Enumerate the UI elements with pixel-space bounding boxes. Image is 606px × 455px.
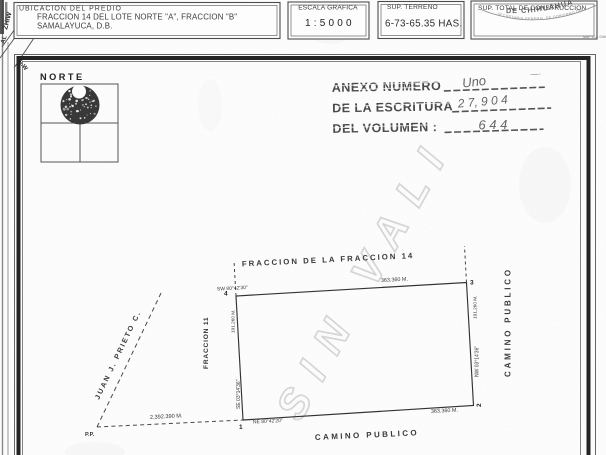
svg-text:SUP. TERRENO: SUP. TERRENO (387, 4, 438, 11)
svg-text:191.260 M.: 191.260 M. (473, 296, 478, 319)
svg-text:NORTE: NORTE (40, 72, 85, 82)
svg-text:FRACCION 14 DEL LOTE NORTE "A": FRACCION 14 DEL LOTE NORTE "A", FRACCION… (37, 13, 237, 22)
svg-text:UBICACION DEL PREDIO: UBICACION DEL PREDIO (19, 6, 122, 13)
svg-text:2: 2 (476, 403, 483, 407)
svg-text:6 4 4: 6 4 4 (478, 117, 507, 133)
svg-text:191.260 M.: 191.260 M. (231, 310, 236, 333)
svg-text:3: 3 (470, 280, 474, 287)
svg-text:NW 03°14'36": NW 03°14'36" (475, 346, 481, 377)
svg-text:P.P.: P.P. (85, 432, 95, 438)
svg-text:6-73-65.35 HAS.: 6-73-65.35 HAS. (385, 19, 462, 30)
svg-text:CAMINO PUBLICO: CAMINO PUBLICO (504, 267, 513, 377)
svg-text:Uno: Uno (461, 73, 487, 91)
svg-text:DE LA ESCRITURA: DE LA ESCRITURA (332, 99, 453, 115)
svg-text:DEL VOLUMEN :: DEL VOLUMEN : (332, 120, 437, 136)
svg-text:1:5000: 1:5000 (305, 18, 355, 29)
svg-text:ESCALA GRAFICA: ESCALA GRAFICA (298, 5, 358, 12)
svg-text:SAMALAYUCA, D.B.: SAMALAYUCA, D.B. (37, 22, 112, 31)
svg-text:MAP 10-1 DWG: MAP 10-1 DWG (583, 35, 606, 39)
svg-text:—·: —· (530, 69, 541, 78)
svg-text:FRACCION 11: FRACCION 11 (203, 317, 210, 369)
svg-text:1: 1 (239, 424, 243, 431)
svg-text:SE 03°14'36": SE 03°14'36" (236, 379, 242, 409)
svg-text:ANEXO NUMERO: ANEXO NUMERO (332, 79, 442, 95)
